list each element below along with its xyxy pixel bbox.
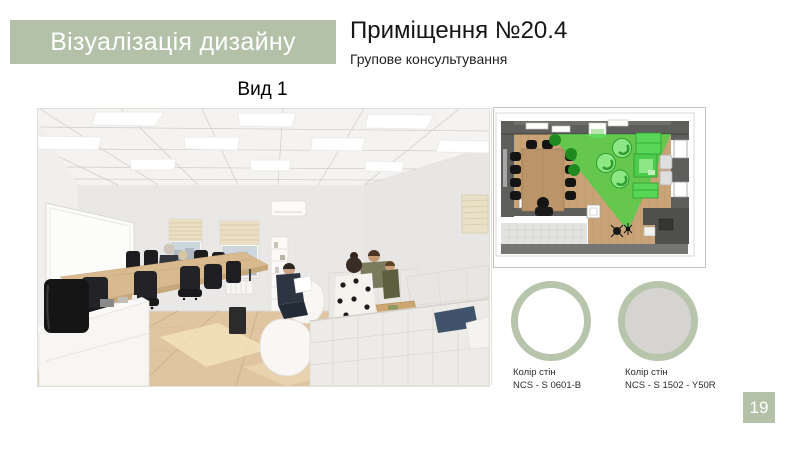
page-number: 19 xyxy=(743,392,775,423)
color-circle-1 xyxy=(511,281,591,361)
swatch-label: Колір стін xyxy=(625,367,738,380)
air-conditioner xyxy=(271,201,306,216)
room-subtitle: Групове консультування xyxy=(350,51,507,67)
floor-plan-illustration xyxy=(493,107,706,268)
view-label: Вид 1 xyxy=(37,79,488,101)
section-banner: Візуалізація дизайну xyxy=(10,20,336,64)
swatch-label: Колір стін xyxy=(513,367,631,380)
room-title: Приміщення №20.4 xyxy=(350,17,567,45)
plan-green-table xyxy=(634,154,657,177)
swatch-code: NCS - S 1502 - Y50R xyxy=(625,380,738,393)
window-blind-right xyxy=(462,195,488,233)
room-render-illustration xyxy=(38,109,489,386)
plan-whiteboard xyxy=(503,149,507,187)
black-ottoman xyxy=(229,307,246,334)
floor-plan-image xyxy=(493,107,706,268)
swatch-code: NCS - S 0601-B xyxy=(513,380,631,393)
color-circle-2 xyxy=(618,281,698,361)
paper xyxy=(294,276,312,293)
speaker xyxy=(44,279,89,333)
wall-color-swatch-2: Колір стін NCS - S 1502 - Y50R xyxy=(618,281,738,392)
slide: Візуалізація дизайну Приміщення №20.4 Гр… xyxy=(0,0,800,450)
section-title: Візуалізація дизайну xyxy=(50,28,296,57)
wall-color-swatch-1: Колір стін NCS - S 0601-B xyxy=(511,281,631,392)
room-render-image xyxy=(37,108,490,387)
hallway-tiles xyxy=(501,223,587,244)
vertical-divider xyxy=(491,108,492,385)
plan-door xyxy=(587,205,600,218)
